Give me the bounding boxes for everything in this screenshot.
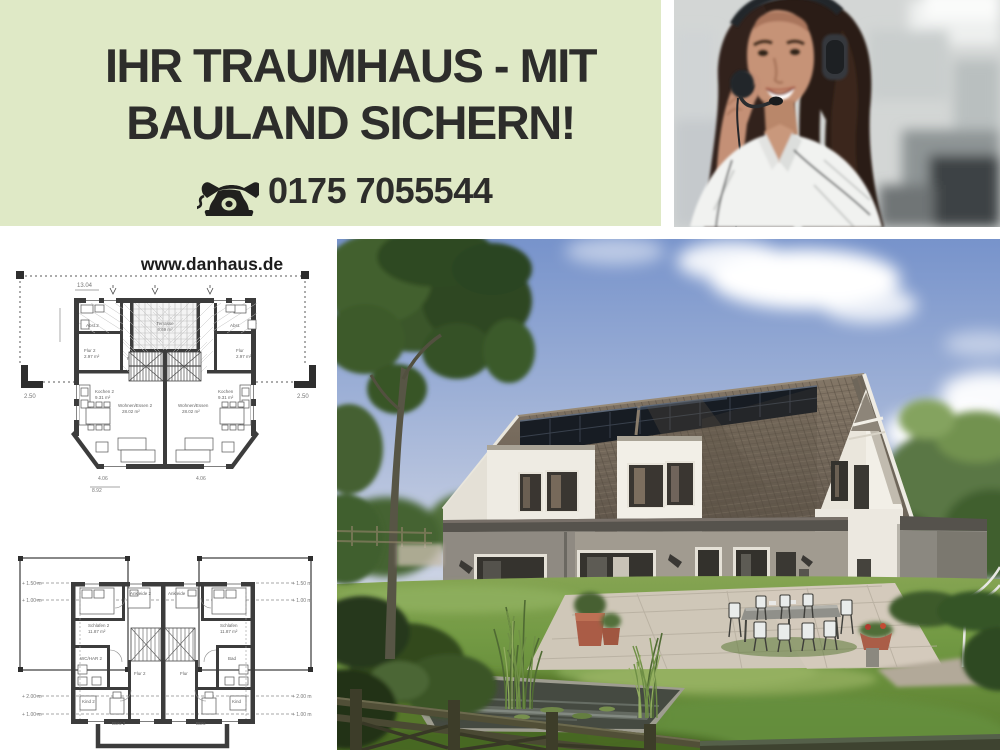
svg-text:Kind: Kind bbox=[232, 699, 242, 704]
svg-text:8.92: 8.92 bbox=[92, 488, 102, 494]
svg-text:+ 2.00 m: + 2.00 m bbox=[292, 694, 312, 700]
svg-text:13.04: 13.04 bbox=[77, 283, 93, 289]
svg-text:+ 1.00 m: + 1.00 m bbox=[292, 712, 312, 718]
svg-text:Kochen 2: Kochen 2 bbox=[95, 389, 115, 394]
svg-text:+ 2.00 m: + 2.00 m bbox=[22, 694, 42, 700]
svg-text:Abst.: Abst. bbox=[230, 323, 240, 328]
svg-text:Büro 2: Büro 2 bbox=[112, 721, 126, 726]
svg-text:Ankleide: Ankleide bbox=[168, 591, 186, 596]
svg-text:Wohnen/Essen 2: Wohnen/Essen 2 bbox=[118, 403, 153, 408]
svg-text:Schlafen 2: Schlafen 2 bbox=[88, 623, 110, 628]
svg-text:11.87 m²: 11.87 m² bbox=[88, 629, 106, 634]
svg-text:Bad: Bad bbox=[228, 656, 237, 661]
svg-text:2.50: 2.50 bbox=[297, 394, 309, 400]
svg-text:4.06: 4.06 bbox=[98, 476, 108, 482]
svg-text:2.97 m²: 2.97 m² bbox=[84, 354, 100, 359]
svg-text:Flur: Flur bbox=[180, 671, 188, 676]
svg-text:www.danhaus.de: www.danhaus.de bbox=[140, 254, 284, 274]
svg-text:+ 1.00 m: + 1.00 m bbox=[292, 598, 312, 604]
svg-text:Flur 2: Flur 2 bbox=[134, 671, 146, 676]
svg-text:Abst.2: Abst.2 bbox=[86, 323, 99, 328]
svg-text:9.31 m²: 9.31 m² bbox=[218, 395, 234, 400]
svg-text:+ 1.00 m: + 1.00 m bbox=[22, 712, 42, 718]
svg-text:2.97 m²: 2.97 m² bbox=[236, 354, 252, 359]
svg-text:Schlafen: Schlafen bbox=[220, 623, 238, 628]
svg-text:11.87 m²: 11.87 m² bbox=[220, 629, 238, 634]
svg-text:9.31 m²: 9.31 m² bbox=[95, 395, 111, 400]
svg-text:Ankleide 2: Ankleide 2 bbox=[130, 591, 152, 596]
svg-text:28.02 m²: 28.02 m² bbox=[122, 409, 140, 414]
svg-text:Wohnen/Essen: Wohnen/Essen bbox=[178, 403, 209, 408]
svg-text:Büro: Büro bbox=[196, 721, 206, 726]
svg-text:Kind 2: Kind 2 bbox=[82, 699, 95, 704]
svg-text:+ 1.00 m: + 1.00 m bbox=[22, 598, 42, 604]
svg-text:4.06: 4.06 bbox=[196, 476, 206, 482]
svg-text:2.50: 2.50 bbox=[24, 394, 36, 400]
svg-text:Kochen: Kochen bbox=[218, 389, 234, 394]
svg-text:Flur 2: Flur 2 bbox=[84, 348, 96, 353]
svg-text:+ 1.50 m: + 1.50 m bbox=[292, 581, 312, 587]
svg-text:+ 1.50 m: + 1.50 m bbox=[22, 581, 42, 587]
svg-text:28.02 m²: 28.02 m² bbox=[182, 409, 200, 414]
svg-text:Flur: Flur bbox=[236, 348, 244, 353]
svg-text:WC/HAR 2: WC/HAR 2 bbox=[80, 656, 102, 661]
